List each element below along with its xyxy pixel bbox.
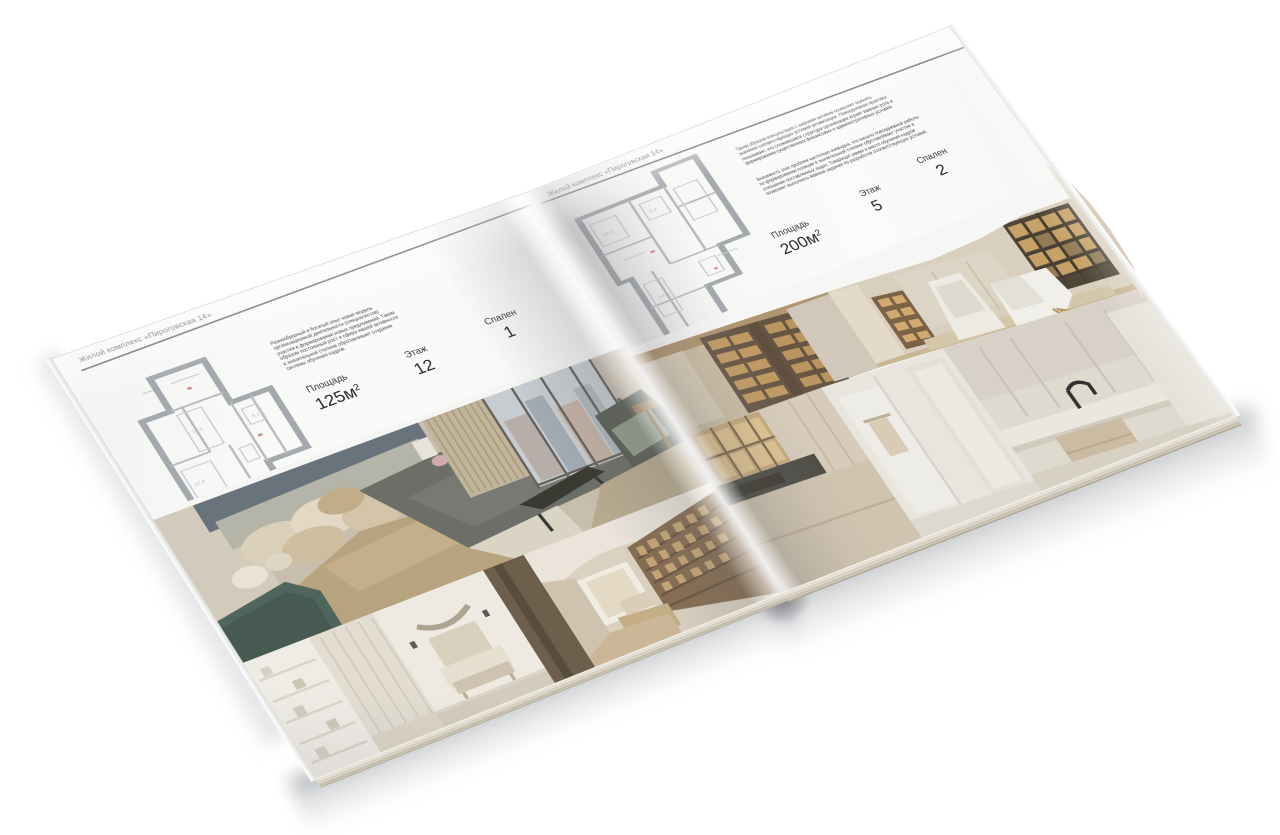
- svg-text:12.4: 12.4: [193, 479, 206, 487]
- svg-text:6.1: 6.1: [251, 412, 261, 419]
